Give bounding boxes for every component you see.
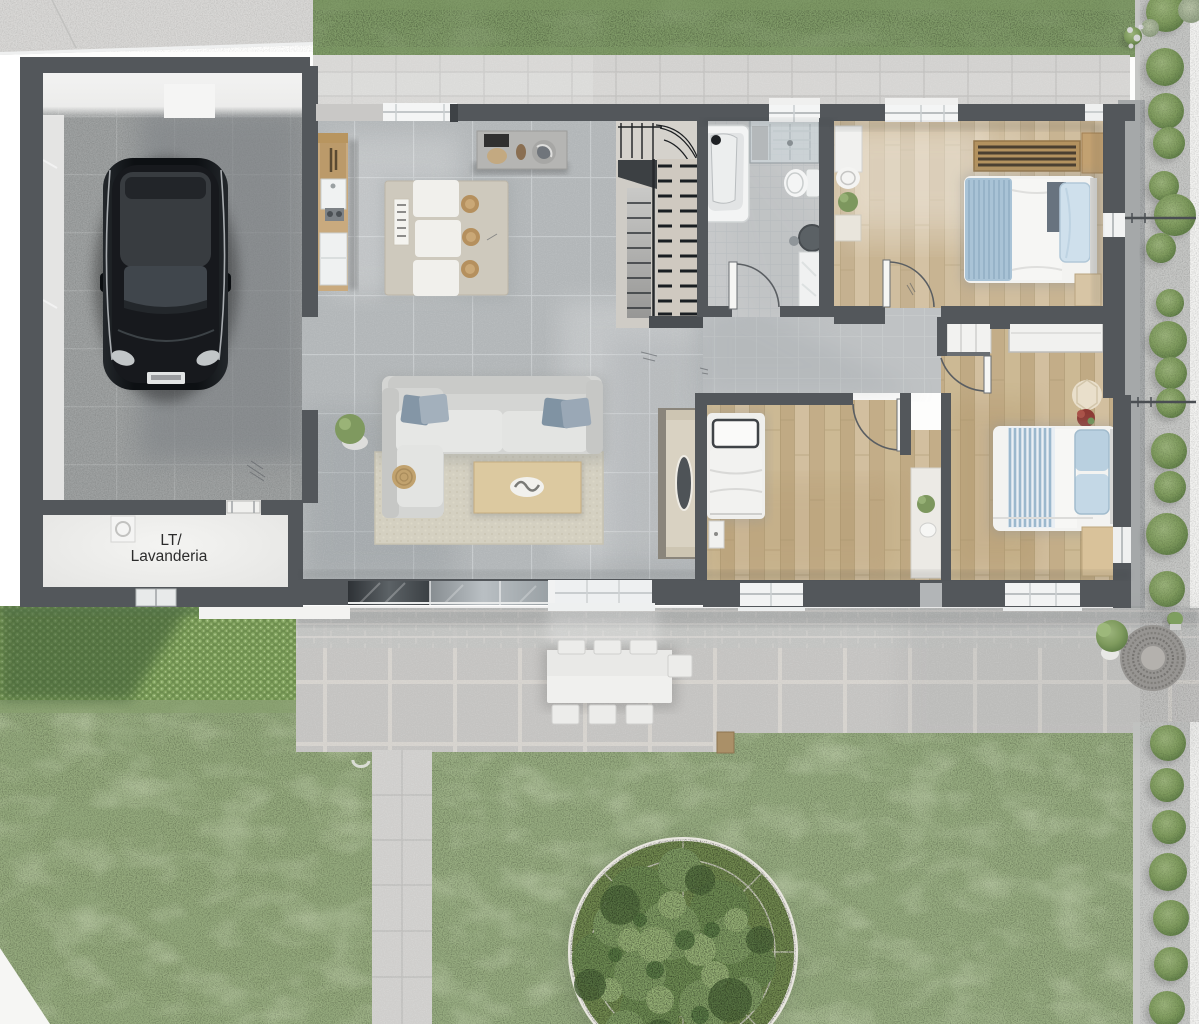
svg-text:LT/: LT/ — [160, 532, 182, 549]
svg-text:Lavanderia: Lavanderia — [131, 548, 208, 565]
